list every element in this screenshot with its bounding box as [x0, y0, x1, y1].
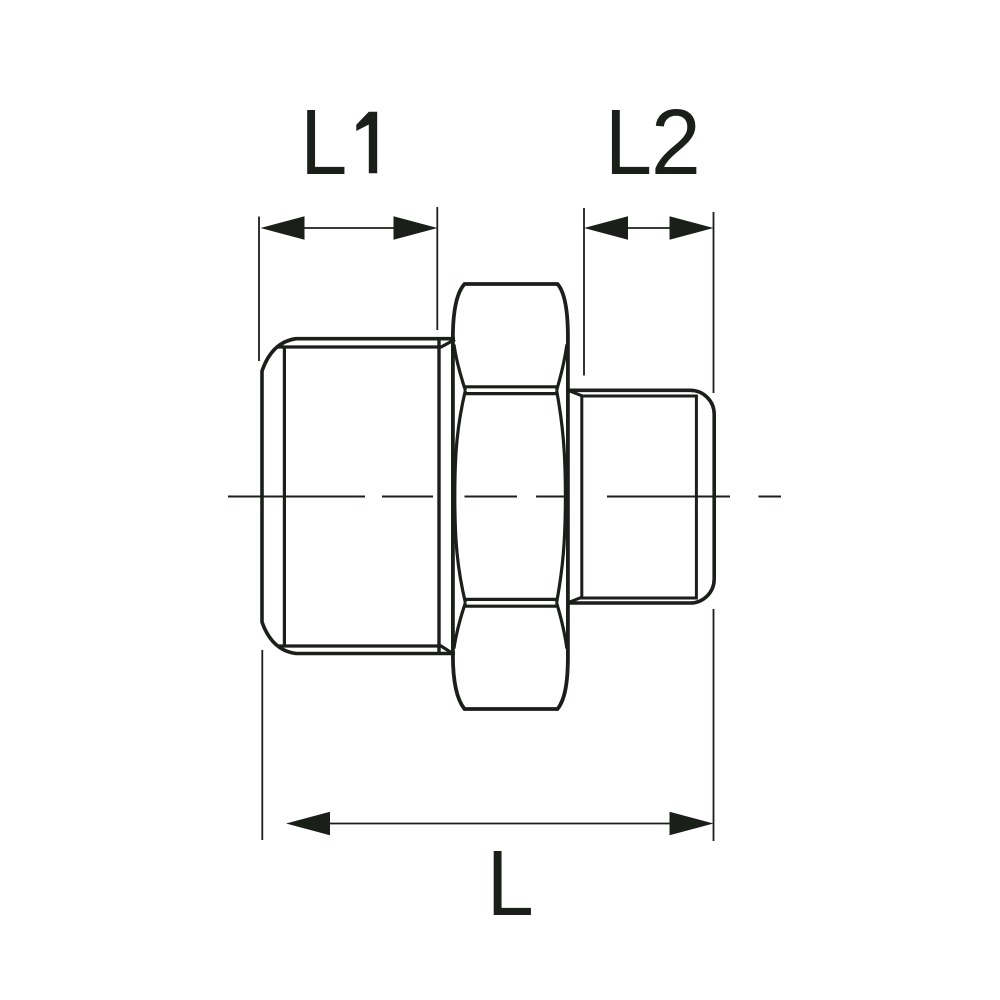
- svg-text:L: L: [487, 831, 534, 935]
- svg-text:L: L: [300, 90, 347, 194]
- svg-text:2: 2: [651, 90, 701, 194]
- svg-text:L: L: [605, 90, 652, 194]
